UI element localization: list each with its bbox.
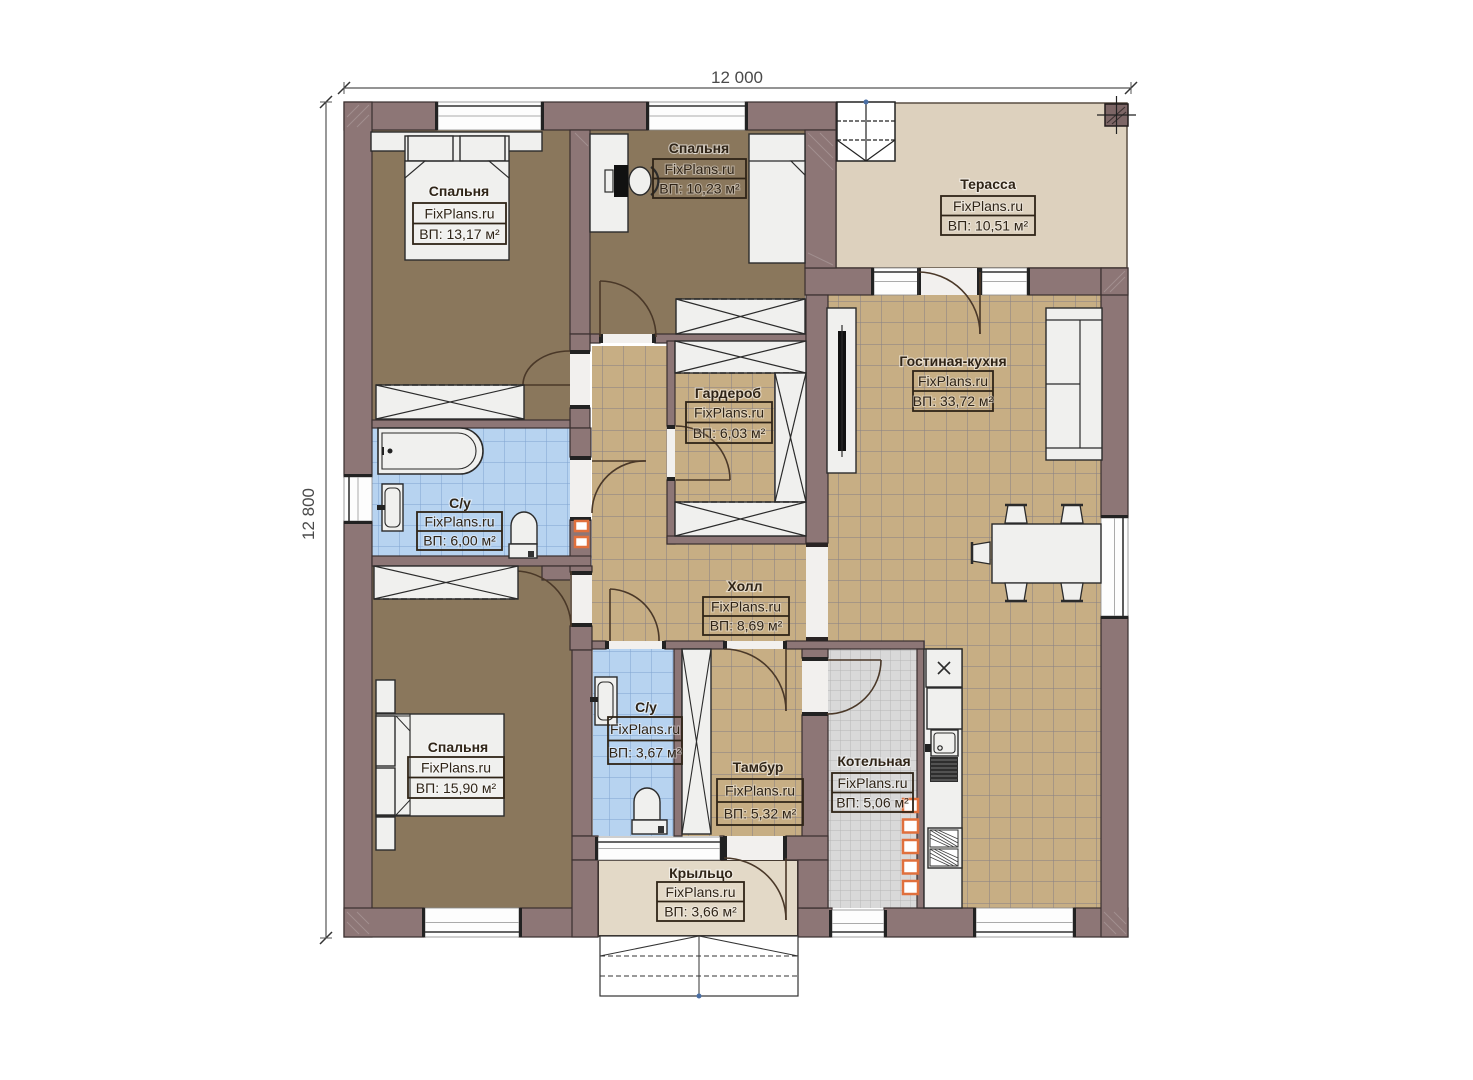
svg-text:ВП: 13,17 м²: ВП: 13,17 м²: [419, 226, 500, 242]
svg-text:FixPlans.ru: FixPlans.ru: [665, 884, 735, 900]
svg-text:ВП: 5,06 м²: ВП: 5,06 м²: [836, 794, 909, 810]
svg-text:ВП: 33,72 м²: ВП: 33,72 м²: [913, 393, 994, 409]
svg-text:ВП: 3,66 м²: ВП: 3,66 м²: [664, 903, 737, 919]
svg-text:FixPlans.ru: FixPlans.ru: [664, 161, 734, 177]
svg-text:FixPlans.ru: FixPlans.ru: [424, 205, 494, 221]
svg-text:С/у: С/у: [449, 495, 471, 511]
svg-text:FixPlans.ru: FixPlans.ru: [421, 759, 491, 775]
svg-text:FixPlans.ru: FixPlans.ru: [918, 373, 988, 389]
svg-text:ВП: 5,32 м²: ВП: 5,32 м²: [724, 806, 797, 822]
svg-text:FixPlans.ru: FixPlans.ru: [694, 404, 764, 420]
svg-text:Гардероб: Гардероб: [695, 385, 762, 401]
svg-text:ВП: 8,69 м²: ВП: 8,69 м²: [710, 618, 783, 634]
svg-text:ВП: 6,00 м²: ВП: 6,00 м²: [423, 533, 496, 549]
svg-text:ВП: 3,67 м²: ВП: 3,67 м²: [609, 744, 682, 760]
svg-text:Спальня: Спальня: [429, 183, 489, 199]
svg-text:FixPlans.ru: FixPlans.ru: [837, 775, 907, 791]
svg-text:12 800: 12 800: [299, 488, 318, 540]
svg-text:Гостиная-кухня: Гостиная-кухня: [899, 353, 1006, 369]
svg-text:FixPlans.ru: FixPlans.ru: [610, 721, 680, 737]
svg-text:Котельная: Котельная: [837, 753, 910, 769]
svg-text:Крыльцо: Крыльцо: [669, 865, 733, 881]
svg-text:Спальня: Спальня: [669, 140, 729, 156]
svg-text:12 000: 12 000: [711, 68, 763, 87]
svg-text:FixPlans.ru: FixPlans.ru: [725, 783, 795, 799]
svg-text:ВП: 6,03 м²: ВП: 6,03 м²: [693, 425, 766, 441]
svg-text:Холл: Холл: [727, 578, 762, 594]
svg-text:Спальня: Спальня: [428, 739, 488, 755]
svg-text:Терасса: Терасса: [960, 176, 1016, 192]
svg-text:ВП: 15,90 м²: ВП: 15,90 м²: [416, 780, 497, 796]
svg-text:FixPlans.ru: FixPlans.ru: [711, 599, 781, 615]
svg-text:FixPlans.ru: FixPlans.ru: [953, 198, 1023, 214]
svg-text:Тамбур: Тамбур: [733, 759, 784, 775]
svg-text:ВП: 10,23 м²: ВП: 10,23 м²: [659, 180, 740, 196]
svg-text:FixPlans.ru: FixPlans.ru: [424, 514, 494, 530]
svg-text:ВП: 10,51 м²: ВП: 10,51 м²: [948, 217, 1029, 233]
svg-text:С/у: С/у: [635, 699, 657, 715]
